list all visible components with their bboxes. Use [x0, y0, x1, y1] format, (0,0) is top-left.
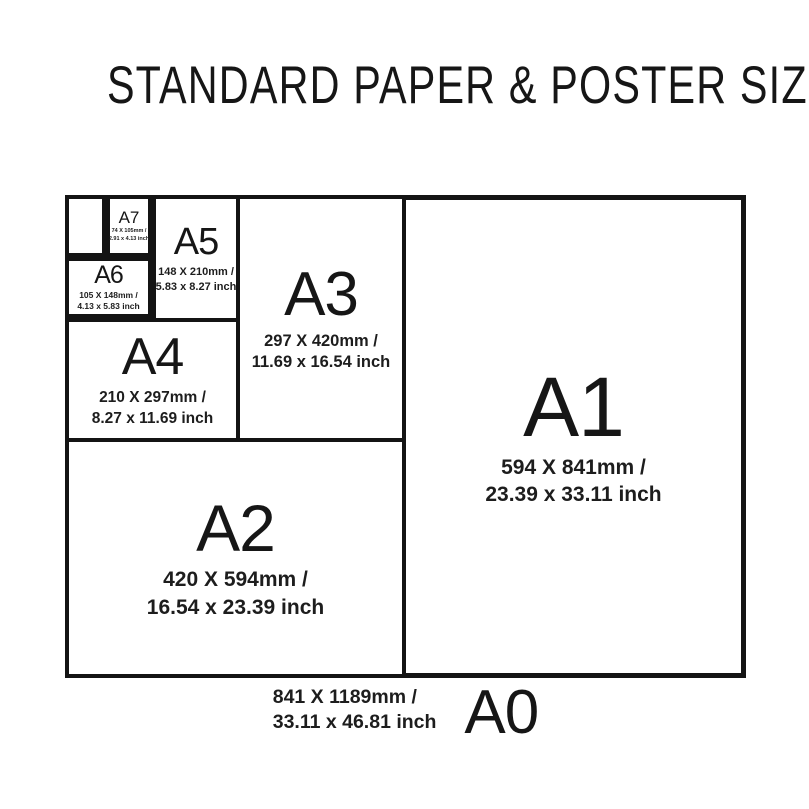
a0-dimensions-mm: 841 X 1189mm / — [273, 685, 437, 710]
a6-size-label: A6 — [94, 263, 123, 288]
a2-dimensions: 420 X 594mm / 16.54 x 23.39 inch — [147, 566, 324, 621]
a2-dimensions-inch: 16.54 x 23.39 inch — [147, 594, 324, 621]
page-title: STANDARD PAPER & POSTER SIZES — [0, 55, 809, 116]
a3-dimensions-mm: 297 X 420mm / — [252, 331, 391, 352]
paper-box-a2: A2 420 X 594mm / 16.54 x 23.39 inch — [65, 438, 406, 678]
a1-dimensions-mm: 594 X 841mm / — [485, 454, 661, 481]
a4-size-label: A4 — [122, 331, 184, 383]
paper-box-a5: A5 148 X 210mm / 5.83 x 8.27 inch — [152, 195, 240, 322]
a7-dimensions-inch: 2.91 x 4.13 inch — [109, 236, 149, 244]
a7-size-label: A7 — [119, 209, 140, 226]
paper-box-a3: A3 297 X 420mm / 11.69 x 16.54 inch — [236, 195, 406, 442]
a2-dimensions-mm: 420 X 594mm / — [147, 566, 324, 593]
a0-dimensions-inch: 33.11 x 46.81 inch — [273, 710, 437, 735]
a0-dimensions: 841 X 1189mm / 33.11 x 46.81 inch — [273, 685, 437, 736]
a4-dimensions-inch: 8.27 x 11.69 inch — [92, 409, 214, 429]
a5-dimensions-inch: 5.83 x 8.27 inch — [156, 280, 237, 294]
page-title-text: STANDARD PAPER & POSTER SIZES — [107, 55, 809, 116]
a1-size-label: A1 — [523, 365, 624, 449]
a2-size-label: A2 — [196, 495, 275, 561]
a0-size-label: A0 — [464, 682, 538, 744]
paper-sizes-infographic: STANDARD PAPER & POSTER SIZES A1 594 X 8… — [0, 0, 809, 809]
paper-box-a6: A6 105 X 148mm / 4.13 x 5.83 inch — [65, 257, 152, 318]
a3-dimensions-inch: 11.69 x 16.54 inch — [252, 352, 391, 373]
a0-caption: 841 X 1189mm / 33.11 x 46.81 inch A0 — [65, 676, 746, 744]
paper-box-a1: A1 594 X 841mm / 23.39 x 33.11 inch — [401, 195, 746, 678]
a6-dimensions: 105 X 148mm / 4.13 x 5.83 inch — [77, 290, 139, 312]
paper-box-a7: A7 74 X 105mm / 2.91 x 4.13 inch — [106, 195, 152, 257]
a5-size-label: A5 — [174, 223, 218, 261]
a3-size-label: A3 — [284, 264, 358, 326]
a6-dimensions-inch: 4.13 x 5.83 inch — [77, 301, 139, 312]
a1-dimensions: 594 X 841mm / 23.39 x 33.11 inch — [485, 454, 661, 509]
a7-dimensions-mm: 74 X 105mm / — [109, 228, 149, 236]
paper-box-empty — [65, 195, 106, 257]
a4-dimensions: 210 X 297mm / 8.27 x 11.69 inch — [92, 388, 214, 428]
a5-dimensions: 148 X 210mm / 5.83 x 8.27 inch — [156, 265, 237, 294]
a6-dimensions-mm: 105 X 148mm / — [77, 290, 139, 301]
a7-dimensions: 74 X 105mm / 2.91 x 4.13 inch — [109, 228, 149, 243]
a3-dimensions: 297 X 420mm / 11.69 x 16.54 inch — [252, 331, 391, 374]
a5-dimensions-mm: 148 X 210mm / — [156, 265, 237, 279]
paper-box-a4: A4 210 X 297mm / 8.27 x 11.69 inch — [65, 318, 240, 442]
a4-dimensions-mm: 210 X 297mm / — [92, 388, 214, 408]
a1-dimensions-inch: 23.39 x 33.11 inch — [485, 481, 661, 508]
